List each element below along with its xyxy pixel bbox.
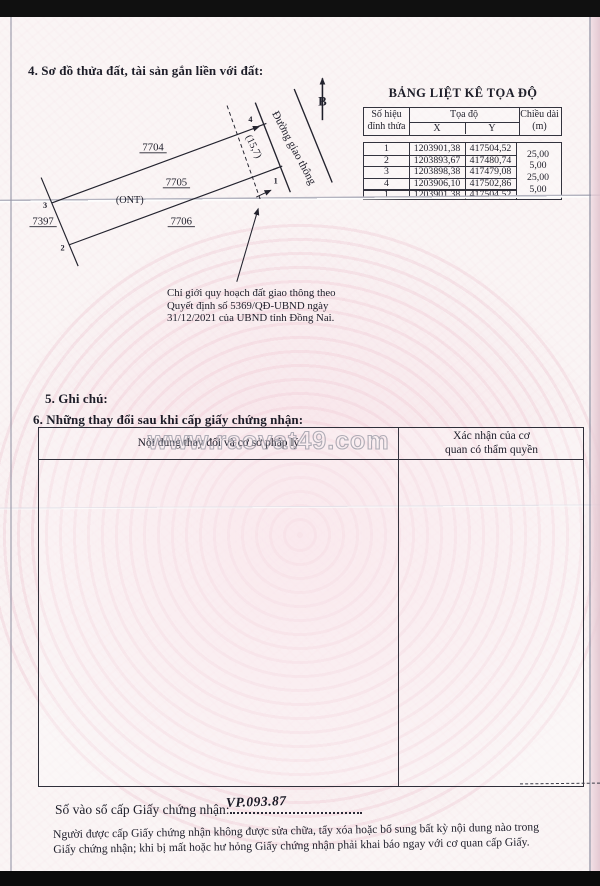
frontage-dimension: (15,7): [243, 133, 264, 160]
col-length-header-2: (m): [519, 121, 560, 132]
col-x-header: X: [409, 123, 465, 134]
col-y-header: Y: [465, 123, 519, 134]
coord-table-header: Số hiệu đỉnh thửa Tọa độ X Y Chiều dài (…: [363, 107, 562, 136]
vertex-3-label: 3: [43, 201, 47, 210]
parcel-label-7704: 7704: [142, 141, 164, 153]
parcel-top-edge: [52, 126, 259, 202]
x-value: 1203906,10: [409, 178, 465, 190]
planning-note-line3: 31/12/2021 của UBND tỉnh Đồng Nai.: [167, 312, 367, 325]
vertex-2-label: 2: [60, 244, 64, 253]
small-arrow: [256, 190, 271, 197]
north-arrow-icon: B: [318, 78, 327, 120]
serial-handwritten-value: VP.093.87: [226, 793, 287, 811]
segment-length: 5,00: [516, 184, 560, 196]
coord-row: 41203906,10417502,86: [364, 178, 516, 190]
page-right-shadow: [591, 17, 600, 872]
x-value: 1203893,67: [409, 155, 465, 167]
changes-col-confirm-header-2: quan có thẩm quyền: [398, 444, 585, 456]
page-right-edge: [589, 17, 591, 872]
section6-title: 6. Những thay đổi sau khi cấp giấy chứng…: [33, 412, 303, 428]
parcel-label-7705: 7705: [166, 176, 187, 188]
x-value: 1203898,38: [409, 166, 465, 178]
coord-row: 21203893,67417480,74: [364, 155, 516, 167]
vertex-4-label: 4: [248, 115, 252, 124]
planning-note: Chỉ giới quy hoạch đất giao thông theo Q…: [167, 287, 367, 325]
changes-table: Nội dung thay đổi và cơ sở pháp lý Xác n…: [38, 427, 584, 787]
coord-row: 31203898,38417479,08: [364, 166, 516, 178]
site-watermark: www.raovat49.com: [148, 427, 418, 456]
road-label: Đường giao thông: [269, 109, 318, 187]
coord-row: 11203901,38417504,52: [364, 143, 516, 155]
segment-length: 25,00: [516, 172, 560, 184]
north-label: B: [318, 95, 327, 109]
planning-note-line1: Chỉ giới quy hoạch đất giao thông theo: [167, 287, 367, 300]
y-value: 417502,86: [465, 178, 516, 190]
col-length-header-1: Chiều dài: [519, 109, 560, 120]
parcel-label-7397: 7397: [32, 215, 54, 227]
note-leader-arrow: [237, 209, 258, 282]
parcel-label-7706: 7706: [171, 215, 193, 227]
changes-table-divider: [398, 428, 399, 786]
coord-table-body: 11203901,38417504,52 21203893,67417480,7…: [363, 142, 562, 200]
segment-length: 25,00: [516, 149, 560, 161]
x-value: 1203901,38: [409, 143, 465, 155]
photo-black-band-bottom: [0, 871, 600, 886]
y-value: 417504,52: [465, 143, 516, 155]
y-value: 417479,08: [465, 166, 516, 178]
changes-col-confirm-header-1: Xác nhận của cơ: [398, 430, 585, 442]
section5-title: 5. Ghi chú:: [45, 391, 108, 407]
changes-table-header-line: [39, 459, 583, 460]
planning-note-line2: Quyết định số 5369/QĐ-UBND ngày: [167, 300, 367, 313]
segment-length: 5,00: [516, 160, 560, 172]
serial-number-line: Số vào sổ cấp Giấy chứng nhận:: [55, 800, 362, 818]
parcel-landuse-label: (ONT): [116, 195, 144, 206]
serial-label: Số vào sổ cấp Giấy chứng nhận:: [55, 802, 230, 817]
photo-black-band-top: [0, 0, 600, 17]
coord-table-title: BẢNG LIỆT KÊ TỌA ĐỘ: [363, 86, 563, 101]
scanned-land-certificate-page: 4. Sơ đồ thửa đất, tài sản gắn liền với …: [0, 0, 600, 886]
col-coords-header: Tọa độ: [409, 109, 519, 120]
y-value: 417480,74: [465, 155, 516, 167]
vertex-1-label: 1: [274, 176, 278, 185]
